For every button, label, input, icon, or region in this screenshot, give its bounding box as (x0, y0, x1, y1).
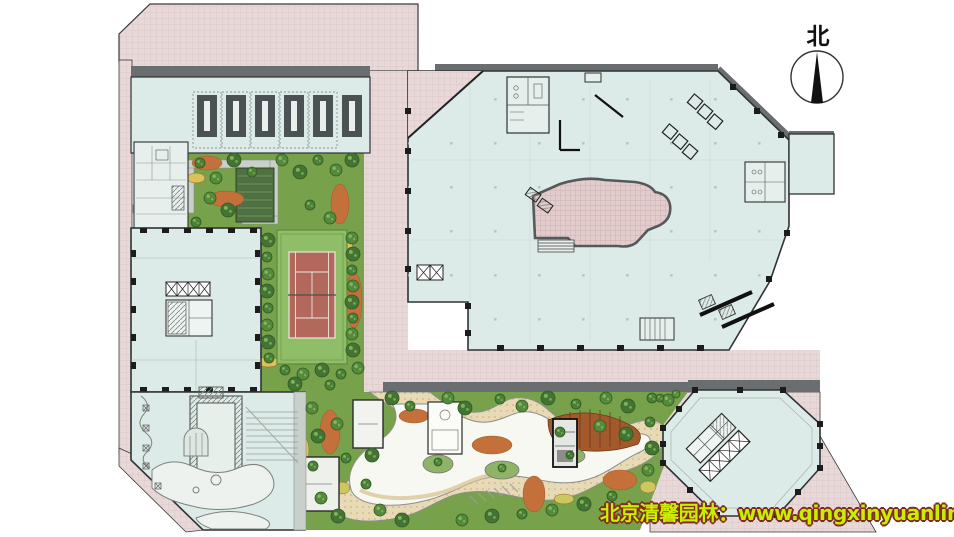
road-vertical (364, 71, 408, 352)
garden-building-1 (353, 400, 383, 448)
site-plan-canvas: 北 北京清馨园林：www.qingxinyuanlin.com (0, 0, 954, 537)
pavement-top-left (119, 4, 418, 71)
site-plan-drawing (0, 0, 954, 537)
main-building-wing (789, 134, 834, 194)
north-arrow (791, 51, 843, 103)
tower-left (131, 228, 261, 392)
watermark: 北京清馨园林：www.qingxinyuanlin.com (600, 497, 954, 526)
garden-building-3 (428, 402, 462, 454)
north-label: 北 (803, 17, 833, 51)
tower-left-core (166, 282, 212, 336)
pavement-left-sliver (119, 60, 132, 454)
equipment-room (745, 162, 785, 202)
garden-kiosk (553, 419, 577, 467)
stair-room-bottom (640, 318, 674, 340)
main-building (405, 71, 834, 351)
building-lower-left (131, 387, 306, 530)
toilet-block (507, 77, 549, 133)
west-elevators (417, 265, 443, 280)
atrium-escalators (538, 240, 574, 252)
tennis-court (277, 230, 347, 364)
garage-annex (134, 142, 188, 232)
